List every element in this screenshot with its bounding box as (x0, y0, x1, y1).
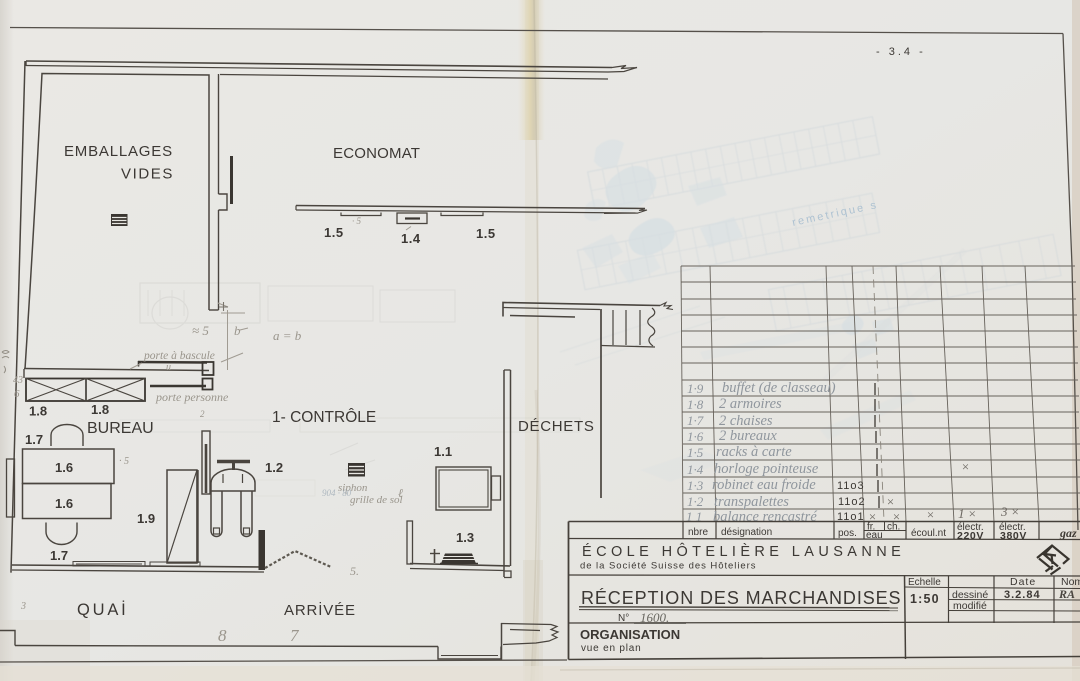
svg-text:· 5: · 5 (119, 456, 129, 467)
svg-text:×: × (961, 459, 970, 474)
svg-text:1.5: 1.5 (476, 226, 496, 241)
svg-text:1.7: 1.7 (25, 432, 43, 447)
svg-text:gaz: gaz (1059, 526, 1077, 540)
svg-text:1·2: 1·2 (687, 494, 704, 509)
svg-text:5.: 5. (350, 564, 359, 578)
svg-text:1600.: 1600. (640, 610, 669, 625)
svg-text:nbre: nbre (688, 527, 708, 538)
svg-text:1 ×: 1 × (958, 506, 977, 521)
svg-text:6: 6 (14, 388, 20, 400)
svg-text:1.1: 1.1 (434, 444, 452, 459)
svg-text:11o3: 11o3 (837, 480, 865, 492)
svg-text:2 chaises: 2 chaises (719, 413, 773, 429)
svg-text:RA: RA (1058, 587, 1075, 601)
svg-text:ORGANISATION: ORGANISATION (580, 627, 680, 642)
svg-text:2 bureaux: 2 bureaux (719, 428, 777, 444)
svg-text:EMBALLAGES: EMBALLAGES (64, 143, 173, 160)
svg-text:1·9: 1·9 (687, 381, 704, 396)
svg-text:robinet eau froide: robinet eau froide (712, 477, 816, 493)
svg-text:1·5: 1·5 (687, 445, 704, 460)
svg-text:- 3.4 -: - 3.4 - (876, 46, 926, 58)
svg-text:220V: 220V (957, 530, 984, 542)
svg-text:grille de sol: grille de sol (350, 494, 403, 506)
svg-text:1.6: 1.6 (55, 460, 73, 475)
svg-text:écoul.nt: écoul.nt (911, 528, 946, 539)
svg-text:· 5: · 5 (352, 216, 362, 226)
svg-text:transpalettes: transpalettes (714, 494, 789, 510)
svg-text:1.3: 1.3 (456, 530, 474, 545)
svg-text:vue en plan: vue en plan (581, 643, 642, 654)
svg-text:désignation: désignation (721, 527, 772, 538)
svg-text:×: × (886, 494, 895, 509)
svg-text:1.7: 1.7 (50, 548, 68, 563)
svg-text:RÉCEPTION DES MARCHANDISES: RÉCEPTION DES MARCHANDISES (581, 588, 901, 608)
svg-text:balance rencastré: balance rencastré (713, 509, 817, 525)
svg-text:1·7: 1·7 (687, 413, 704, 428)
svg-text:ECONOMAT: ECONOMAT (333, 145, 420, 162)
svg-text:Echelle: Echelle (908, 577, 941, 588)
svg-text:1·6: 1·6 (687, 429, 704, 444)
svg-text:1.4: 1.4 (401, 231, 421, 246)
svg-text:BUREAU: BUREAU (87, 420, 154, 437)
svg-text:eau: eau (866, 530, 883, 541)
svg-text:1·8: 1·8 (687, 397, 704, 412)
svg-text:ℓ: ℓ (398, 486, 403, 500)
svg-text:1:50: 1:50 (910, 592, 940, 606)
svg-text:1·3: 1·3 (687, 478, 704, 493)
svg-text:b: b (234, 323, 241, 338)
svg-text:904 · 80: 904 · 80 (322, 488, 352, 498)
svg-text:porte à bascule: porte à bascule (143, 350, 215, 362)
svg-text:DÉCHETS: DÉCHETS (518, 418, 595, 435)
svg-text:1.9: 1.9 (137, 511, 155, 526)
svg-text:1.5: 1.5 (324, 225, 344, 240)
svg-text:8: 8 (218, 626, 227, 645)
svg-text:VIDES: VIDES (121, 166, 174, 183)
svg-text:43: 43 (13, 375, 23, 386)
svg-text:Date: Date (1010, 576, 1036, 588)
svg-text:racks à carte: racks à carte (716, 444, 792, 460)
svg-text:3.2.84: 3.2.84 (1004, 589, 1041, 601)
svg-text:2: 2 (200, 409, 205, 419)
svg-text:≈ 5: ≈ 5 (192, 323, 209, 338)
svg-text:11o2: 11o2 (838, 496, 866, 508)
svg-text:modifié: modifié (953, 600, 987, 612)
svg-text:a = b: a = b (273, 328, 302, 343)
svg-text:2 armoires: 2 armoires (719, 396, 782, 412)
svg-text:ch.: ch. (887, 522, 900, 533)
svg-text:u: u (166, 362, 171, 373)
svg-text:3: 3 (20, 601, 26, 612)
svg-text:pos.: pos. (838, 528, 857, 539)
svg-text:de la Société Suisse des Hôtel: de la Société Suisse des Hôteliers (580, 561, 756, 572)
svg-text:1.6: 1.6 (55, 496, 73, 511)
svg-text:ÉCOLE HÔTELIÈRE LAUSANNE: ÉCOLE HÔTELIÈRE LAUSANNE (582, 543, 905, 560)
svg-text:N°: N° (618, 613, 629, 624)
svg-text:QUAİ: QUAİ (77, 600, 129, 619)
svg-text:ARRİVÉE: ARRİVÉE (284, 601, 356, 619)
svg-text:1.8: 1.8 (91, 402, 109, 417)
svg-text:horloge pointeuse: horloge pointeuse (714, 461, 819, 477)
svg-text:380V: 380V (1000, 530, 1027, 542)
svg-text:buffet (de classeau): buffet (de classeau) (722, 380, 836, 396)
svg-text:1.8: 1.8 (29, 404, 47, 419)
svg-text:3 ×: 3 × (1000, 504, 1020, 519)
svg-text:1.2: 1.2 (265, 460, 283, 475)
svg-text:porte personne: porte personne (155, 390, 229, 404)
svg-text:1·4: 1·4 (687, 462, 704, 477)
svg-text:1- CONTRÔLE: 1- CONTRÔLE (272, 409, 376, 426)
svg-text:×: × (926, 507, 935, 522)
